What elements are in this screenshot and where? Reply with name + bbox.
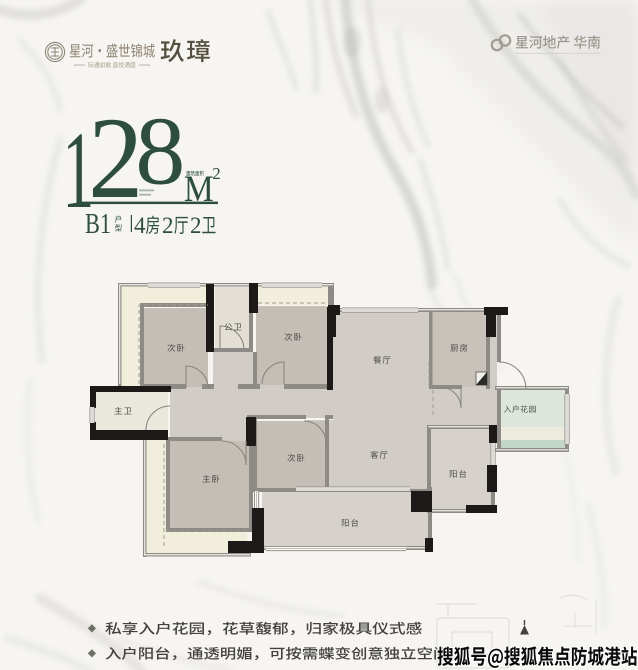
svg-text:2: 2 (212, 164, 221, 183)
svg-text:8: 8 (135, 98, 185, 206)
svg-text:4: 4 (134, 213, 146, 238)
svg-text:2: 2 (162, 213, 174, 238)
svg-text:B1: B1 (85, 208, 111, 240)
svg-text:2: 2 (190, 213, 202, 238)
